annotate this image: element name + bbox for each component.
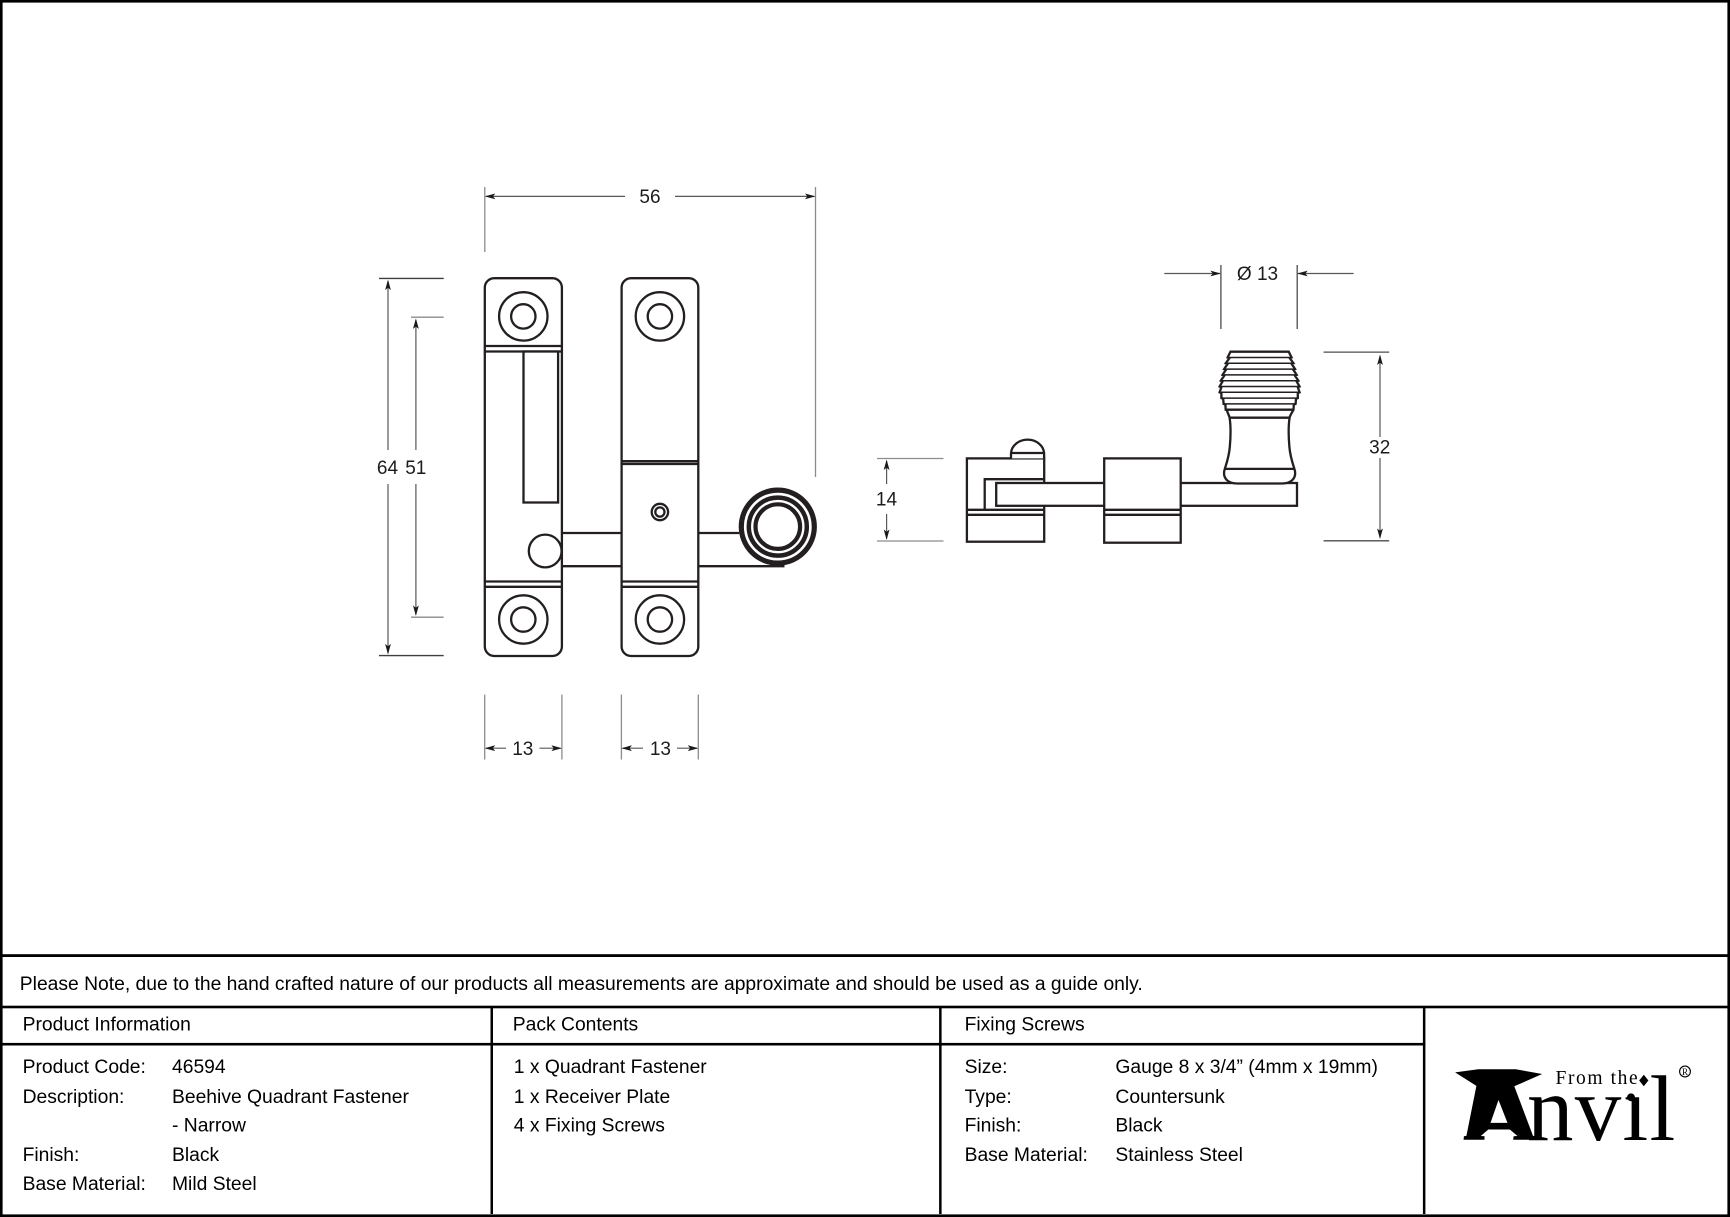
svg-text:Gauge 8 x 3/4” (4mm x 19mm): Gauge 8 x 3/4” (4mm x 19mm)	[1115, 1057, 1378, 1078]
svg-text:Fixing Screws: Fixing Screws	[965, 1015, 1085, 1036]
svg-text:Finish:: Finish:	[23, 1145, 80, 1166]
svg-text:64: 64	[377, 458, 399, 479]
svg-text:56: 56	[639, 187, 660, 208]
svg-text:Finish:: Finish:	[965, 1116, 1022, 1137]
svg-text:13: 13	[650, 739, 671, 760]
svg-text:Description:: Description:	[23, 1087, 125, 1108]
svg-text:Countersunk: Countersunk	[1115, 1087, 1225, 1108]
svg-text:Base Material:: Base Material:	[23, 1174, 146, 1195]
svg-text:32: 32	[1369, 438, 1390, 459]
svg-text:Product Information: Product Information	[23, 1015, 191, 1036]
svg-text:1 x Quadrant Fastener: 1 x Quadrant Fastener	[514, 1057, 707, 1078]
svg-text:Please Note, due to the hand c: Please Note, due to the hand crafted nat…	[20, 974, 1143, 995]
svg-text:Black: Black	[1115, 1116, 1163, 1137]
svg-text:Beehive Quadrant Fastener: Beehive Quadrant Fastener	[172, 1087, 409, 1108]
svg-text:4 x Fixing Screws: 4 x Fixing Screws	[514, 1116, 665, 1137]
svg-text:Black: Black	[172, 1145, 220, 1166]
svg-text:51: 51	[405, 458, 426, 479]
svg-text:Mild Steel: Mild Steel	[172, 1174, 257, 1195]
svg-text:Size:: Size:	[965, 1057, 1008, 1078]
svg-text:Ø 13: Ø 13	[1237, 264, 1278, 285]
svg-text:- Narrow: - Narrow	[172, 1116, 246, 1137]
svg-text:R: R	[1682, 1067, 1688, 1077]
svg-text:Pack Contents: Pack Contents	[513, 1015, 638, 1036]
svg-text:Type:: Type:	[965, 1087, 1012, 1108]
svg-text:46594: 46594	[172, 1057, 226, 1078]
svg-text:13: 13	[512, 739, 533, 760]
svg-text:Product Code:: Product Code:	[23, 1057, 146, 1078]
svg-text:1 x Receiver Plate: 1 x Receiver Plate	[514, 1087, 670, 1108]
svg-text:14: 14	[876, 490, 898, 511]
svg-text:From the: From the	[1556, 1068, 1640, 1089]
svg-text:Stainless Steel: Stainless Steel	[1115, 1145, 1243, 1166]
svg-text:Base Material:: Base Material:	[965, 1145, 1088, 1166]
